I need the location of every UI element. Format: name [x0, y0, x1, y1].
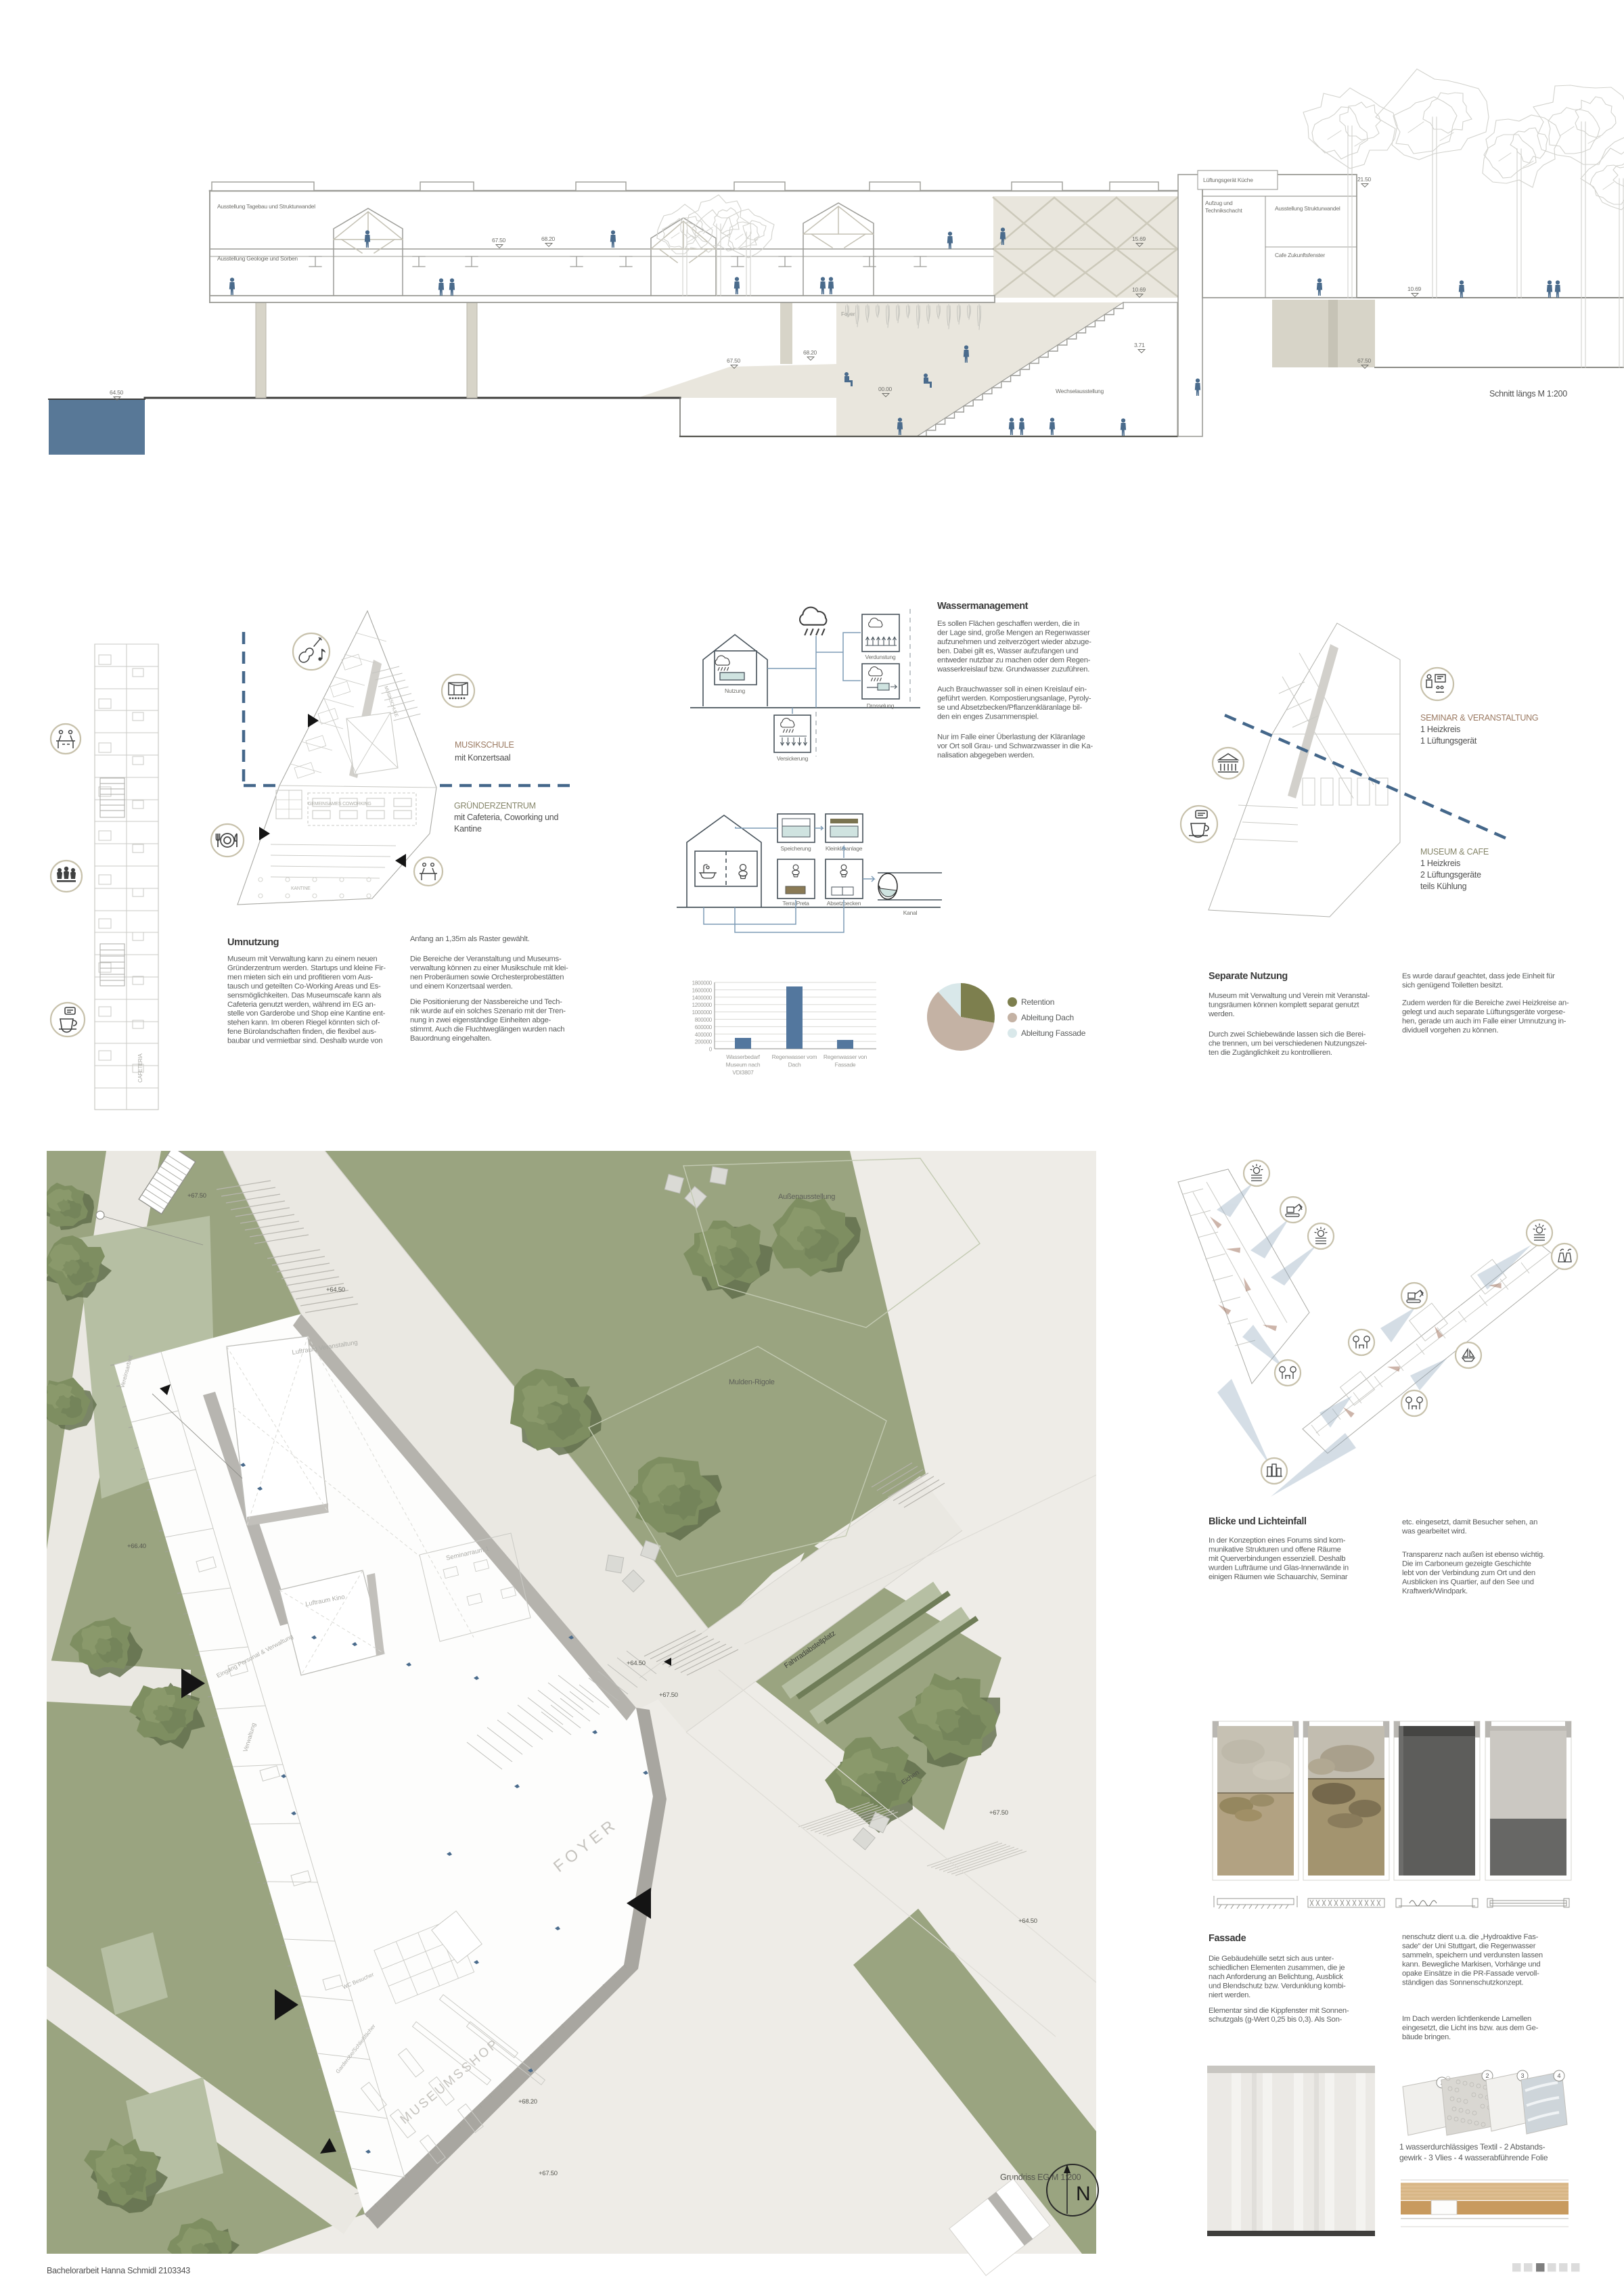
svg-text:1200000: 1200000 — [692, 1002, 713, 1008]
svg-text:800000: 800000 — [695, 1017, 713, 1023]
svg-text:Im Dach werden lichtlenkende L: Im Dach werden lichtlenkende Lamellen — [1402, 2015, 1531, 2023]
svg-text:N: N — [1076, 2183, 1090, 2205]
svg-text:MUSIKSCHULE: MUSIKSCHULE — [455, 740, 514, 750]
svg-text:mit Cafeteria, Coworking und: mit Cafeteria, Coworking und — [454, 813, 558, 822]
svg-text:Bauordnung eingehalten.: Bauordnung eingehalten. — [410, 1035, 492, 1043]
svg-text:Retention: Retention — [1021, 997, 1054, 1007]
svg-text:dividuell vorgehen zu können.: dividuell vorgehen zu können. — [1402, 1026, 1498, 1035]
svg-text:+66.40: +66.40 — [127, 1543, 146, 1550]
svg-text:Aufzug und: Aufzug und — [1205, 200, 1233, 206]
svg-text:men mieten sich ein und profit: men mieten sich ein und profitieren vom … — [227, 973, 374, 981]
svg-text:bäude bringen.: bäude bringen. — [1402, 2033, 1451, 2041]
svg-text:68.20: 68.20 — [541, 235, 556, 242]
svg-text:niert werden.: niert werden. — [1209, 1991, 1250, 1999]
svg-text:eingesetzt, die Licht ins bzw.: eingesetzt, die Licht ins bzw. aus dem G… — [1402, 2024, 1539, 2032]
svg-text:Außenausstellung: Außenausstellung — [778, 1193, 835, 1201]
svg-text:+68.20: +68.20 — [518, 2098, 537, 2106]
svg-text:1400000: 1400000 — [692, 995, 713, 1001]
svg-text:aufzunehmen und zeitverzögert: aufzunehmen und zeitverzögert wieder abz… — [937, 638, 1091, 646]
svg-text:tausch und geteilten Co-Workin: tausch und geteilten Co-Working Areas un… — [227, 982, 381, 991]
svg-text:Es sollen Flächen geschaffen w: Es sollen Flächen geschaffen werden, die… — [937, 620, 1079, 628]
svg-text:stehen kann. Im oberen Riegel: stehen kann. Im oberen Riegel könnten si… — [227, 1019, 380, 1027]
svg-text:Die im Carboneum gezeigte Gesc: Die im Carboneum gezeigte Geschichte — [1402, 1560, 1531, 1568]
svg-text:Ausstellung Geologie und So: Ausstellung Geologie und Sorben — [217, 255, 298, 262]
svg-text:sensmöglichkeiten. Das Museums: sensmöglichkeiten. Das Museumscafe kann … — [227, 991, 382, 999]
svg-text:4: 4 — [1557, 2072, 1560, 2079]
svg-text:CAFETERIA: CAFETERIA — [137, 1053, 143, 1083]
svg-text:Kraftwerk/Windpark.: Kraftwerk/Windpark. — [1402, 1587, 1468, 1595]
svg-text:teils Kühlung: teils Kühlung — [1420, 882, 1467, 891]
svg-text:1 Heizkreis: 1 Heizkreis — [1420, 859, 1460, 868]
svg-text:200000: 200000 — [695, 1039, 713, 1045]
svg-text:nalisation abgegeben werden.: nalisation abgegeben werden. — [937, 751, 1035, 759]
svg-text:3: 3 — [1520, 2072, 1524, 2079]
svg-text:der Lage sind, große Mengen an: der Lage sind, große Mengen an Regenwass… — [937, 629, 1090, 637]
svg-text:sich genügend Toiletten besitz: sich genügend Toiletten besitzt. — [1402, 981, 1504, 989]
svg-text:werden.: werden. — [1208, 1010, 1235, 1018]
svg-text:stimmt. Auch die Fluchtwegläng: stimmt. Auch die Fluchtweglängen wurden … — [410, 1025, 564, 1033]
svg-text:Die Positionierung der Nassber: Die Positionierung der Nassbereiche und … — [410, 998, 562, 1006]
svg-text:Mulden-Rigole: Mulden-Rigole — [729, 1378, 775, 1386]
svg-text:1 Heizkreis: 1 Heizkreis — [1420, 725, 1460, 734]
svg-text:10.69: 10.69 — [1407, 286, 1422, 292]
svg-text:stelle von Garderobe und Shop: stelle von Garderobe und Shop eine Kanti… — [227, 1009, 386, 1018]
svg-text:Dach: Dach — [788, 1062, 801, 1068]
svg-text:+64.50: +64.50 — [326, 1286, 345, 1294]
svg-text:Kantine: Kantine — [454, 824, 482, 834]
svg-text:Zudem werden für die Bereiche: Zudem werden für die Bereiche zwei Heizk… — [1402, 999, 1569, 1007]
svg-text:mit Konzertsaal: mit Konzertsaal — [455, 753, 510, 763]
svg-text:+67.50: +67.50 — [989, 1809, 1008, 1817]
svg-text:Cafeteria genutzt werden, währ: Cafeteria genutzt werden, während im EG … — [227, 1001, 376, 1009]
svg-text:Blicke und Lichteinfall: Blicke und Lichteinfall — [1209, 1516, 1307, 1527]
svg-text:gewirk - 3 Vlies - 4 wasserabf: gewirk - 3 Vlies - 4 wasserabführende Fo… — [1399, 2153, 1548, 2162]
svg-text:+67.50: +67.50 — [187, 1192, 206, 1200]
svg-text:67.50: 67.50 — [727, 357, 741, 364]
svg-text:Auch Brauchwasser soll in eine: Auch Brauchwasser soll in einen Kreislau… — [937, 685, 1087, 694]
svg-text:Ableitung Fassade: Ableitung Fassade — [1021, 1028, 1086, 1038]
svg-text:wurden Lufträume und Glas-Inne: wurden Lufträume und Glas-Innenwände in — [1208, 1564, 1349, 1572]
svg-text:nung in zwei eigenständige Ein: nung in zwei eigenständige Einheiten abg… — [410, 1016, 551, 1024]
svg-text:1800000: 1800000 — [692, 980, 713, 986]
svg-text:geführt werden. Kompostierungs: geführt werden. Kompostierungsanlage, Py… — [937, 695, 1091, 703]
svg-text:Drosselung: Drosselung — [867, 702, 895, 709]
svg-text:Anfang an 1,35m als Raster gew: Anfang an 1,35m als Raster gewählt. — [410, 935, 530, 943]
svg-text:Museum nach: Museum nach — [726, 1062, 761, 1068]
svg-text:+67.50: +67.50 — [659, 1691, 678, 1699]
svg-text:Die Gebäudehülle setzt sich au: Die Gebäudehülle setzt sich aus unter- — [1209, 1955, 1334, 1963]
svg-text:opake Einsätze in die PR-Fassa: opake Einsätze in die PR-Fassade vervoll… — [1402, 1970, 1539, 1978]
svg-text:Cafe Zukunftsfenster: Cafe Zukunftsfenster — [1275, 252, 1325, 258]
svg-text:10.69: 10.69 — [1132, 286, 1146, 293]
svg-text:MUSEUM & CAFE: MUSEUM & CAFE — [1420, 847, 1489, 857]
svg-text:1000000: 1000000 — [692, 1009, 713, 1016]
svg-text:den ein enges Zusammenspiel.: den ein enges Zusammenspiel. — [937, 713, 1039, 721]
svg-text:67.50: 67.50 — [492, 237, 506, 244]
svg-text:nik wurde auf ein solches Szen: nik wurde auf ein solches Szenario mit d… — [410, 1007, 566, 1015]
svg-text:verwaltung können zu einer Mus: verwaltung können zu einer Musikschule m… — [410, 964, 568, 972]
svg-text:Die Bereiche der Veranstaltung: Die Bereiche der Veranstaltung und Museu… — [410, 955, 562, 963]
svg-text:baubar und vermietbar sind. De: baubar und vermietbar sind. Deshalb wurd… — [227, 1037, 382, 1045]
svg-text:15.69: 15.69 — [1132, 235, 1146, 242]
svg-text:lebt von der Verbindung zum Or: lebt von der Verbindung zum Ort und den — [1402, 1569, 1535, 1577]
svg-text:1 wasserdurchlässiges Textil -: 1 wasserdurchlässiges Textil - 2 Abstand… — [1399, 2142, 1546, 2152]
svg-text:In der Konzeption eines Forums: In der Konzeption eines Forums sind kom- — [1209, 1537, 1346, 1545]
svg-text:67.50: 67.50 — [1357, 357, 1372, 364]
svg-text:etc. eingesetzt, damit Besuch: etc. eingesetzt, damit Besucher sehen, a… — [1402, 1518, 1537, 1526]
svg-text:+67.50: +67.50 — [539, 2170, 558, 2177]
svg-text:Lüftungsgerät Küche: Lüftungsgerät Küche — [1203, 177, 1253, 183]
svg-text:schiedlichen Elementen zusamme: schiedlichen Elementen zusammen, die je — [1209, 1963, 1345, 1972]
svg-text:KANTINE: KANTINE — [291, 886, 311, 891]
svg-text:und Blendschutz bzw. Verdunklu: und Blendschutz bzw. Verdunklung kombi- — [1209, 1982, 1346, 1990]
svg-text:Versickerung: Versickerung — [777, 755, 809, 762]
svg-text:Ausstellung Tagebau und Str: Ausstellung Tagebau und Strukturwandel — [217, 203, 315, 210]
svg-text:+64.50: +64.50 — [1018, 1917, 1037, 1925]
svg-text:600000: 600000 — [695, 1024, 713, 1030]
svg-text:2: 2 — [1485, 2072, 1489, 2079]
svg-text:SEMINAR & VERANSTALTUNG: SEMINAR & VERANSTALTUNG — [1420, 713, 1538, 723]
svg-text:1 Lüftungsgerät: 1 Lüftungsgerät — [1420, 736, 1477, 746]
svg-text:se und Absetzbecken/Pflanzenkl: se und Absetzbecken/Pflanzenkläranlage b… — [937, 704, 1083, 712]
svg-text:Nutzung: Nutzung — [725, 687, 745, 694]
svg-text:GRÜNDERZENTRUM: GRÜNDERZENTRUM — [454, 801, 536, 811]
svg-text:2 Lüftungsgeräte: 2 Lüftungsgeräte — [1420, 870, 1481, 880]
svg-text:schutzgals (g-Wert 0,25 bis 0,: schutzgals (g-Wert 0,25 bis 0,3). Als So… — [1209, 2016, 1343, 2024]
svg-text:Separate Nutzung: Separate Nutzung — [1209, 971, 1288, 982]
svg-text:Schnitt längs M 1:200: Schnitt längs M 1:200 — [1489, 389, 1567, 399]
svg-text:sammeln, speichern und verduns: sammeln, speichern und verdunsten lassen — [1402, 1951, 1543, 1959]
svg-text:VDI3807: VDI3807 — [732, 1069, 754, 1076]
svg-text:Durch zwei Schiebewände lassen: Durch zwei Schiebewände lassen sich die … — [1209, 1030, 1366, 1039]
svg-text:ben. Dabei gilt es, Wasser auf: ben. Dabei gilt es, Wasser aufzufangen u… — [937, 647, 1078, 655]
svg-text:Ausstellung Strukturwandel: Ausstellung Strukturwandel — [1275, 205, 1340, 212]
svg-text:sade“ der Uni Stuttgart, die R: sade“ der Uni Stuttgart, die Regenwasser — [1402, 1942, 1536, 1950]
svg-text:GEMEINSAMES COWORKING: GEMEINSAMES COWORKING — [308, 802, 371, 806]
svg-text:Fassade: Fassade — [835, 1062, 856, 1068]
svg-text:Regenwasser von: Regenwasser von — [824, 1053, 867, 1060]
svg-text:munikative Strukturen und offe: munikative Strukturen und offene Räume — [1209, 1545, 1341, 1553]
svg-text:Transparenz nach außen ist ebe: Transparenz nach außen ist ebenso wichti… — [1402, 1551, 1545, 1559]
svg-text:gelegt und auch separate Lüftu: gelegt und auch separate Lüftungsgeräte … — [1402, 1008, 1566, 1016]
svg-text:Wechselausstellung: Wechselausstellung — [1056, 388, 1104, 394]
svg-text:tungsräumen können komplett se: tungsräumen können komplett separat genu… — [1209, 1001, 1359, 1009]
svg-text:Nur im Falle einer Überlastung: Nur im Falle einer Überlastung der Klära… — [937, 733, 1085, 742]
svg-text:Bachelorarbeit Hanna Schmidl 2: Bachelorarbeit Hanna Schmidl 2103343 — [47, 2266, 190, 2275]
svg-text:1600000: 1600000 — [692, 987, 713, 993]
svg-text:Wassermanagement: Wassermanagement — [937, 601, 1029, 612]
svg-text:Fassade: Fassade — [1209, 1933, 1246, 1944]
svg-text:was gearbeitet wird.: was gearbeitet wird. — [1401, 1527, 1467, 1535]
svg-text:Es wurde darauf geachtet, dass: Es wurde darauf geachtet, dass jede Einh… — [1402, 972, 1555, 980]
svg-text:Technikschacht: Technikschacht — [1205, 207, 1243, 214]
svg-text:Speicherung: Speicherung — [781, 845, 812, 852]
svg-text:3.71: 3.71 — [1134, 342, 1145, 348]
svg-text:400000: 400000 — [695, 1032, 713, 1038]
svg-text:00.00: 00.00 — [878, 386, 893, 392]
svg-text:che trennen, um bei verschiede: che trennen, um bei verschiedenen Nutzun… — [1209, 1039, 1368, 1047]
svg-text:68.20: 68.20 — [803, 349, 817, 356]
svg-text:Kanal: Kanal — [903, 909, 918, 916]
svg-text:21.50: 21.50 — [1357, 176, 1372, 183]
svg-text:kann. Bewegliche Markisen, Vor: kann. Bewegliche Markisen, Vorhänge und — [1402, 1960, 1540, 1968]
svg-text:mit Querverbindungen essenziel: mit Querverbindungen essenziell. Deshalb — [1209, 1555, 1345, 1563]
svg-text:64.50: 64.50 — [110, 389, 124, 396]
svg-text:Umnutzung: Umnutzung — [227, 937, 279, 948]
svg-text:wasserkreislauf bzw. Grundwass: wasserkreislauf bzw. Grundwasser zuzufüh… — [937, 665, 1089, 673]
svg-text:Museum mit Verwaltung kann zu: Museum mit Verwaltung kann zu einem neue… — [227, 955, 377, 963]
svg-text:Verdunstung: Verdunstung — [865, 654, 897, 660]
svg-text:Regenwasser vom: Regenwasser vom — [772, 1053, 817, 1060]
svg-text:entweder nutzbar zu machen ode: entweder nutzbar zu machen oder dem Rege… — [937, 656, 1091, 664]
svg-text:hen, gerade um auch im Falle e: hen, gerade um auch im Falle einer Umnut… — [1402, 1017, 1566, 1025]
svg-text:Gründerzentrum werden. Startup: Gründerzentrum werden. Startups und klei… — [227, 964, 386, 972]
svg-text:fene Bürolandschaften finden,: fene Bürolandschaften finden, die flexib… — [227, 1028, 376, 1036]
svg-text:vor Ort soll Grau- und Schwarz: vor Ort soll Grau- und Schwarzwasser in … — [937, 742, 1093, 750]
svg-text:Elementar sind die Kippfenster: Elementar sind die Kippfenster mit Sonne… — [1209, 2007, 1349, 2015]
svg-text:ständigen das Sonnenschutzkonz: ständigen das Sonnenschutzkonzept. — [1402, 1978, 1523, 1986]
svg-text:nach Anforderung an Belichtung: nach Anforderung an Belichtung, Ausblick — [1209, 1973, 1343, 1981]
svg-text:Wasserbedarf: Wasserbedarf — [726, 1053, 760, 1060]
svg-text:+64.50: +64.50 — [627, 1660, 646, 1667]
svg-text:einigen Räumen wie Schauarchiv: einigen Räumen wie Schauarchiv, Seminar — [1209, 1573, 1348, 1581]
svg-text:Museum mit Verwaltung und Vere: Museum mit Verwaltung und Verein mit Ver… — [1209, 992, 1370, 1000]
svg-text:nen Proberäumen sowie Orcheste: nen Proberäumen sowie Orchesterprobestät… — [410, 973, 564, 981]
svg-text:ten die Zugänglichkeit zu kont: ten die Zugänglichkeit zu kontrollieren. — [1209, 1049, 1332, 1057]
svg-text:Ausblicken ins Quartier, auf d: Ausblicken ins Quartier, auf den See und — [1402, 1578, 1534, 1586]
svg-text:Ableitung Dach: Ableitung Dach — [1021, 1013, 1074, 1022]
svg-text:und einem Konzertsaal werden.: und einem Konzertsaal werden. — [410, 982, 513, 991]
svg-text:nenschutz dient u.a. die „Hydr: nenschutz dient u.a. die „Hydroaktive Fa… — [1402, 1933, 1539, 1941]
